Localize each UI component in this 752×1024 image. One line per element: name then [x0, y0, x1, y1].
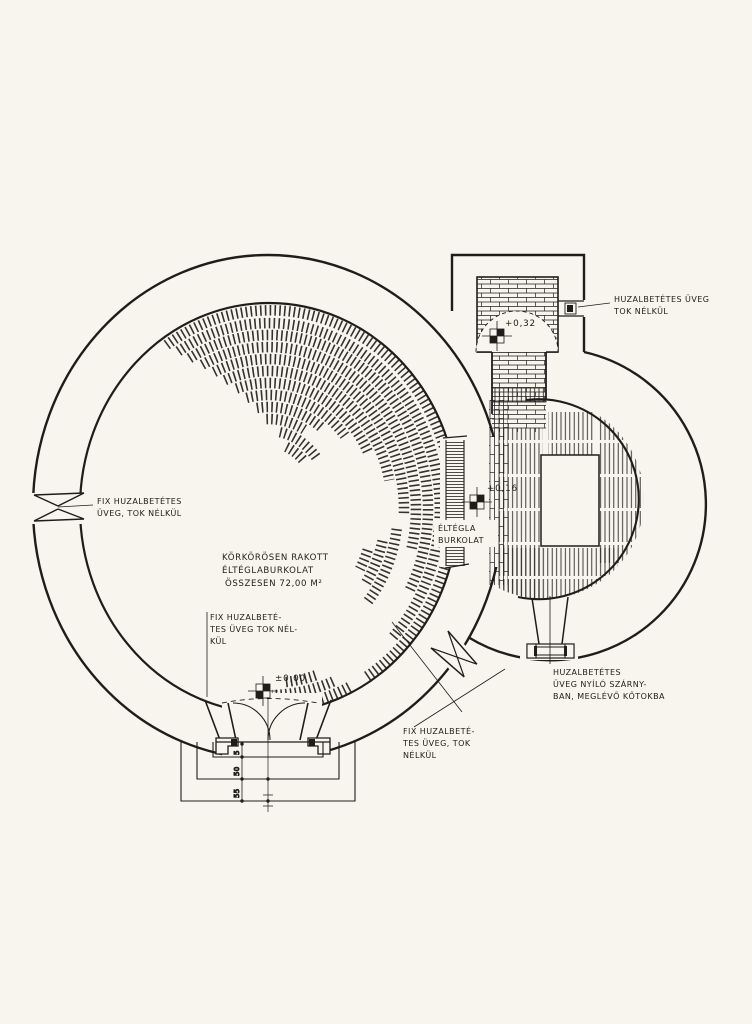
level-entrance: ±0,00	[275, 674, 306, 684]
entrance-window-label-2: TES ÜVEG TOK NÉL-	[209, 623, 298, 634]
floor-note-2: ÉLTÉGLABURKOLAT	[222, 564, 314, 576]
floor-note-3: ÖSSZESEN 72,00 M²	[225, 578, 322, 589]
left-fixed-window	[28, 493, 93, 524]
junction-window-label-3: NÉLKÜL	[403, 749, 437, 760]
right-door-label-3: BAN, MEGLÉVŐ KŐTOKBA	[553, 690, 665, 701]
step-dim-3: 55	[233, 788, 241, 798]
junction-window-label-1: FIX HUZALBETÉ-	[403, 725, 475, 736]
entrance-window-label-1: FIX HUZALBETÉ-	[210, 611, 282, 622]
left-window-label-2: ÜVEG, TOK NÉLKÜL	[97, 507, 182, 518]
junction-window-label-2: TES ÜVEG, TOK	[402, 738, 471, 748]
fireplace-recess	[541, 455, 599, 546]
right-door-label-1: HUZALBETÉTES	[553, 666, 621, 677]
floor-plan-drawing: 5 50 55	[0, 0, 752, 1024]
step-dim-1: 5	[233, 750, 241, 755]
annex-window-label-2: TOK NÉLKÜL	[613, 305, 668, 316]
floor-note-1: KÖRKÖRÖSEN RAKOTT	[222, 552, 329, 563]
left-window-label-1: FIX HUZALBETÉTES	[97, 495, 182, 506]
passage-floor-label-1: ÉLTÉGLA	[438, 522, 476, 533]
level-annex: +0,32	[505, 319, 536, 329]
annex-window-label-1: HUZALBETÉTES ÜVEG	[614, 293, 709, 304]
step-dim-2: 50	[233, 766, 241, 776]
entrance-window-label-3: KÜL	[210, 636, 227, 646]
drawing-sheet: 5 50 55	[0, 0, 752, 1024]
passage-floor-label-2: BURKOLAT	[438, 536, 484, 545]
level-passage: +0,16	[487, 484, 518, 494]
right-door-label-2: ÜVEG NYÍLÓ SZÁRNY-	[553, 678, 647, 689]
